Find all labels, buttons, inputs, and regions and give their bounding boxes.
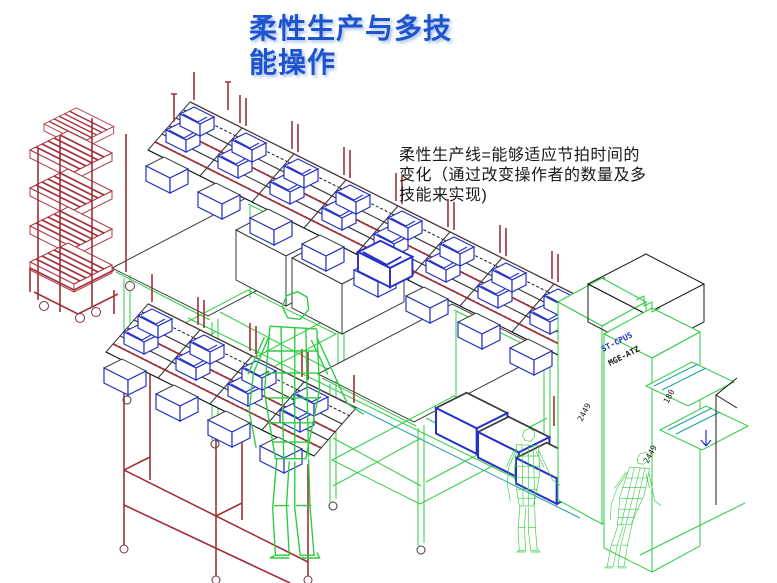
slide-body-line3: 技能来实现) (399, 186, 699, 206)
stacked-trolley (30, 108, 135, 323)
slide-body-line1: 柔性生产线=能够适应节拍时间的 (399, 146, 699, 166)
machines: ST-CPUS MGE-ATZ 2449 180 2449 (558, 254, 748, 572)
presentation-slide: ST-CPUS MGE-ATZ 2449 180 2449 柔性生产与多技 能操… (0, 0, 777, 583)
slide-title-line1: 柔性生产与多技 (249, 12, 529, 46)
slide-title: 柔性生产与多技 能操作 (249, 12, 529, 80)
slide-body-line2: 变化（通过改变操作者的数量及多 (399, 166, 699, 186)
slide-body: 柔性生产线=能够适应节拍时间的 变化（通过改变操作者的数量及多 技能来实现) (399, 146, 699, 206)
cad-illustration: ST-CPUS MGE-ATZ 2449 180 2449 (0, 0, 777, 583)
slide-title-line2: 能操作 (249, 46, 529, 80)
